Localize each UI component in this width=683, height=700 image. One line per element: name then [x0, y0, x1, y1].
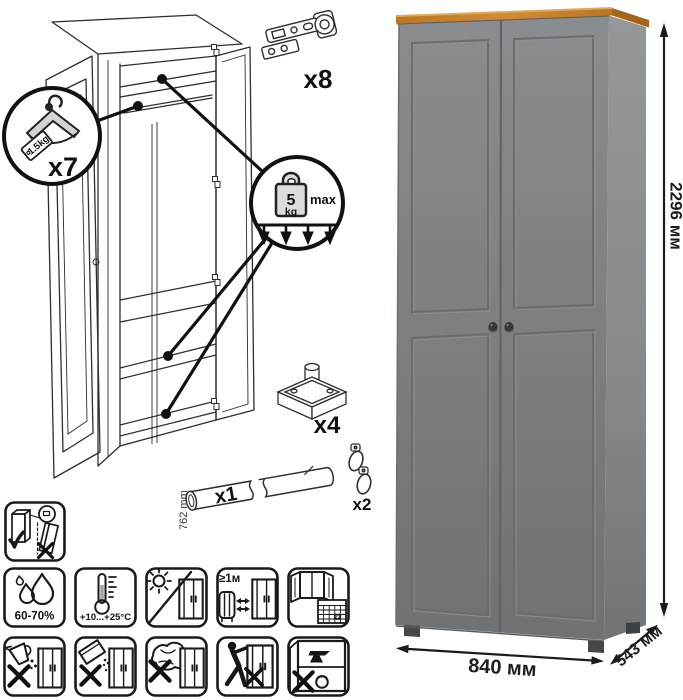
- shelf-load-callout: 5 kg max: [251, 157, 343, 249]
- no-overloading-icon: [287, 636, 350, 697]
- hinge-mark-icon: [212, 399, 220, 410]
- wardrobe-side: [604, 16, 646, 641]
- calendar-day-label: 21: [335, 615, 341, 621]
- hinge-mark-icon: [213, 275, 221, 286]
- wardrobe-glyph: [38, 649, 61, 688]
- rod-hardware-icon: x1 762 mm: [178, 463, 335, 530]
- no-scrubbing-icon: [145, 636, 208, 697]
- wardrobe-glyph: [109, 649, 132, 688]
- no-dragging-icon: [216, 636, 279, 697]
- rod-length-label: 762 mm: [178, 490, 190, 530]
- product-infographic: 1.5kg x7 5 kg max: [0, 0, 683, 700]
- ventilation-icon: 21: [287, 567, 350, 628]
- rod-count-label: x1: [213, 483, 239, 509]
- hanger-callout: 1.5kg x7: [4, 88, 100, 184]
- holder-count-label: x2: [353, 495, 372, 514]
- wardrobe-product-render: 2296 мм 840 мм 543 мм: [388, 0, 683, 697]
- wardrobe-line-drawing: 1.5kg x7 5 kg max: [0, 0, 390, 545]
- wardrobe-front: [396, 16, 609, 641]
- width-dimension: 840 мм: [396, 645, 604, 681]
- height-label: 2296 мм: [667, 182, 683, 250]
- wardrobe-glyph: [179, 580, 202, 619]
- foot-count-label: x4: [314, 412, 341, 439]
- door-gap: [500, 20, 501, 633]
- hinge-hardware-icon: x8: [257, 10, 339, 94]
- height-dimension: 2296 мм: [660, 23, 683, 617]
- load-unit-label: kg: [285, 206, 297, 218]
- temperature-label: +10...+25°C: [80, 612, 131, 623]
- foot-hardware-icon: x4: [278, 364, 346, 440]
- distance-label: ≥1м: [219, 573, 240, 585]
- load-max-label: max: [310, 192, 337, 207]
- width-label: 840 мм: [468, 655, 538, 681]
- heater-distance-icon: ≥1м: [216, 567, 279, 628]
- secure-to-wall-icon: [4, 501, 66, 562]
- no-direct-sunlight-icon: [145, 567, 208, 628]
- cabinet-body-drawing: [52, 15, 254, 466]
- no-liquids-icon: [3, 636, 66, 697]
- calendar-icon: 21: [318, 600, 346, 623]
- temperature-icon: +10...+25°C: [74, 567, 137, 628]
- hanger-count-label: x7: [48, 152, 78, 182]
- hinge-count-label: x8: [304, 64, 333, 94]
- humidity-icon: 60-70%: [3, 567, 66, 628]
- rod-holder-hardware-icon: x2: [347, 444, 373, 514]
- wardrobe-glyph: [180, 649, 203, 688]
- no-abrasive-powder-icon: [74, 636, 137, 697]
- humidity-label: 60-70%: [15, 611, 55, 623]
- hinge-mark-icon: [213, 177, 221, 188]
- wardrobe-glyph: [252, 580, 275, 619]
- wardrobe-photo: [396, 8, 649, 653]
